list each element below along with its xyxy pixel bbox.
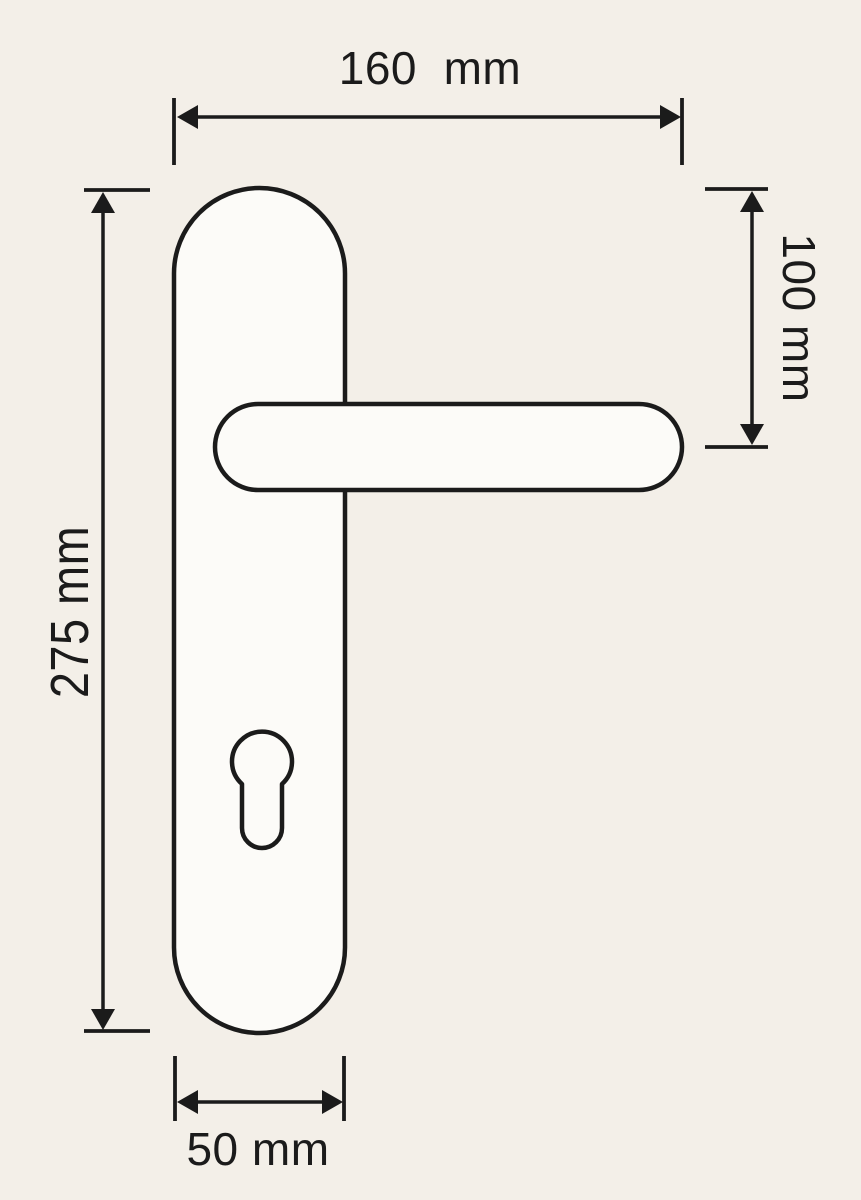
arrowhead-right-icon xyxy=(322,1090,343,1114)
technical-drawing-canvas: 160 mm 275 mm 100 mm 50 mm xyxy=(0,0,861,1200)
dimension-160mm: 160 mm xyxy=(174,42,682,165)
arrowhead-up-icon xyxy=(91,192,115,213)
dimension-label-100mm: 100 mm xyxy=(773,233,825,402)
dimension-label-160mm: 160 mm xyxy=(339,42,521,94)
arrowhead-left-icon xyxy=(177,105,198,129)
arrowhead-up-icon xyxy=(740,191,764,212)
door-handle xyxy=(174,188,682,1033)
dimension-label-50mm: 50 mm xyxy=(186,1123,329,1175)
keyhole-cutout xyxy=(232,732,292,848)
arrowhead-down-icon xyxy=(740,424,764,445)
backplate-shape xyxy=(174,188,345,1033)
door-handle-technical-drawing: 160 mm 275 mm 100 mm 50 mm xyxy=(0,0,861,1200)
dimension-100mm: 100 mm xyxy=(705,189,825,447)
dimension-275mm: 275 mm xyxy=(39,190,150,1031)
lever-handle-shape xyxy=(215,404,682,490)
arrowhead-right-icon xyxy=(660,105,681,129)
dimension-label-275mm: 275 mm xyxy=(39,526,100,698)
dimension-50mm: 50 mm xyxy=(175,1056,344,1175)
arrowhead-left-icon xyxy=(177,1090,198,1114)
arrowhead-down-icon xyxy=(91,1009,115,1030)
